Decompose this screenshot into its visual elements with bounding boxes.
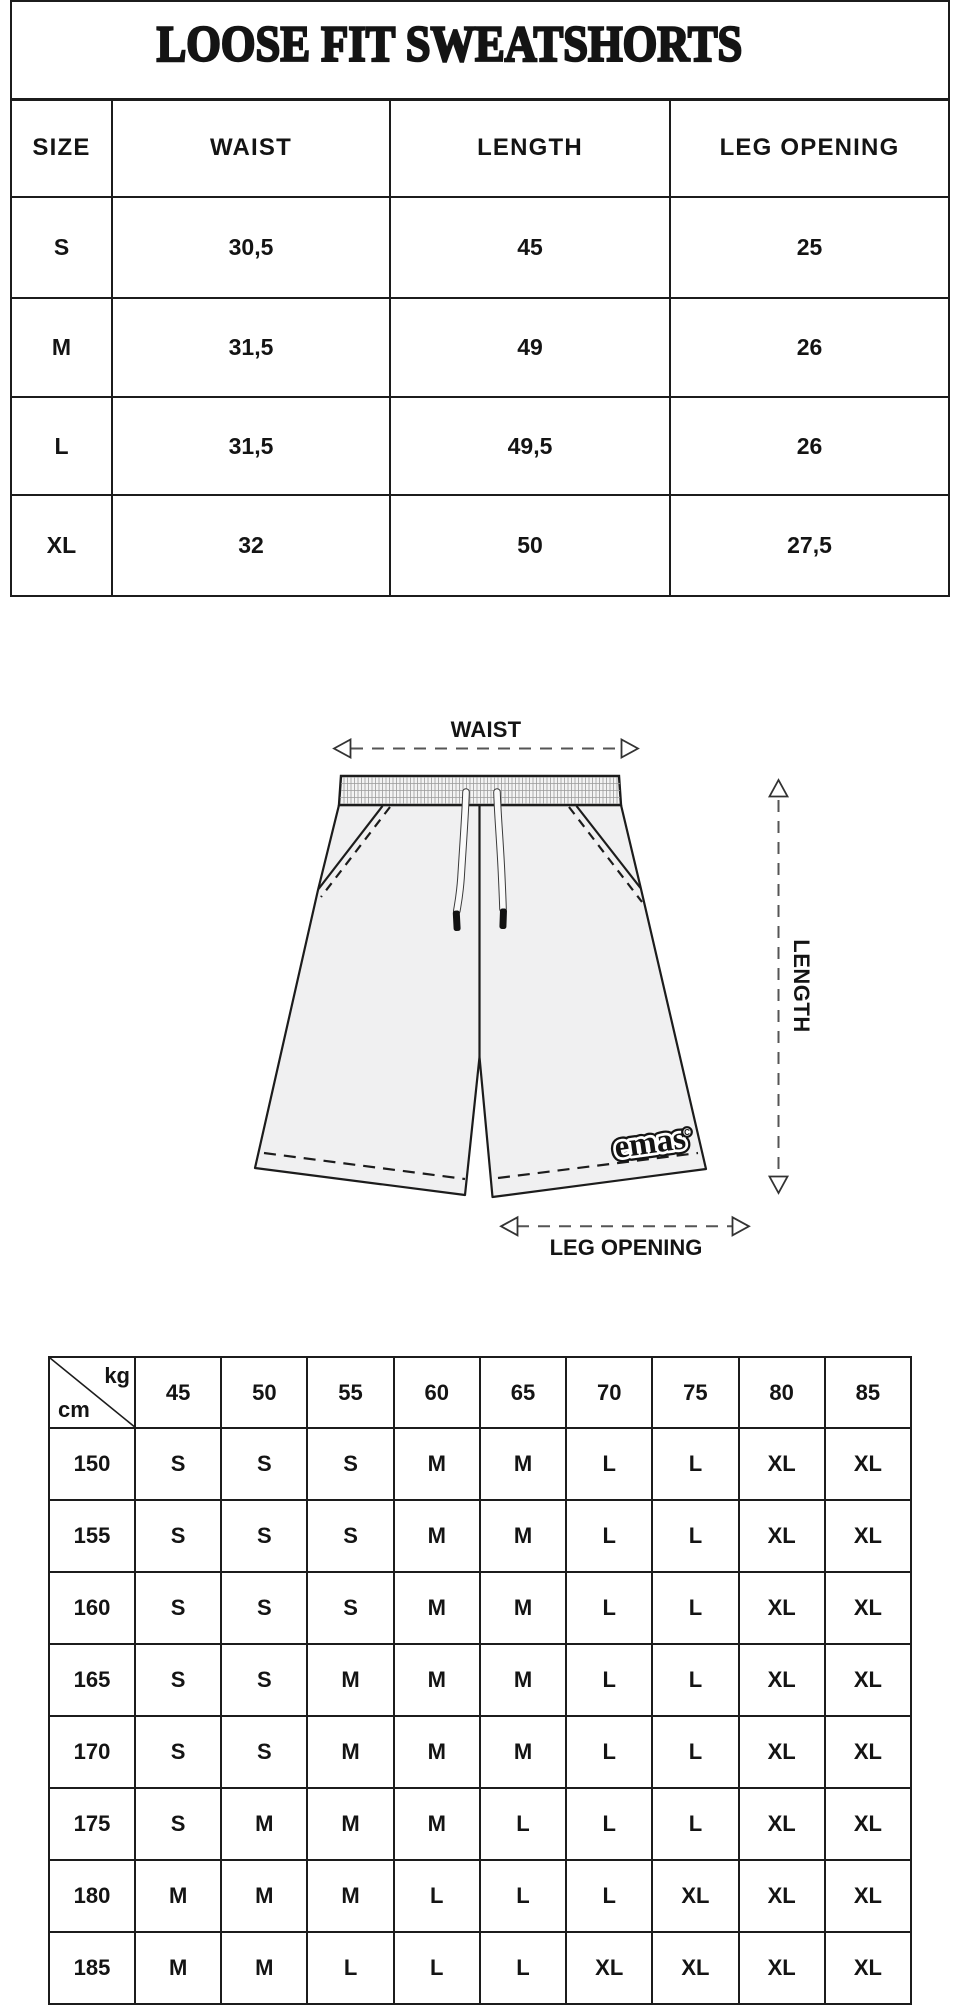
svg-text:LENGTH: LENGTH xyxy=(789,939,814,1032)
svg-text:C: C xyxy=(684,1128,690,1137)
svg-text:LEG OPENING: LEG OPENING xyxy=(550,1235,703,1260)
svg-text:WAIST: WAIST xyxy=(451,717,522,742)
